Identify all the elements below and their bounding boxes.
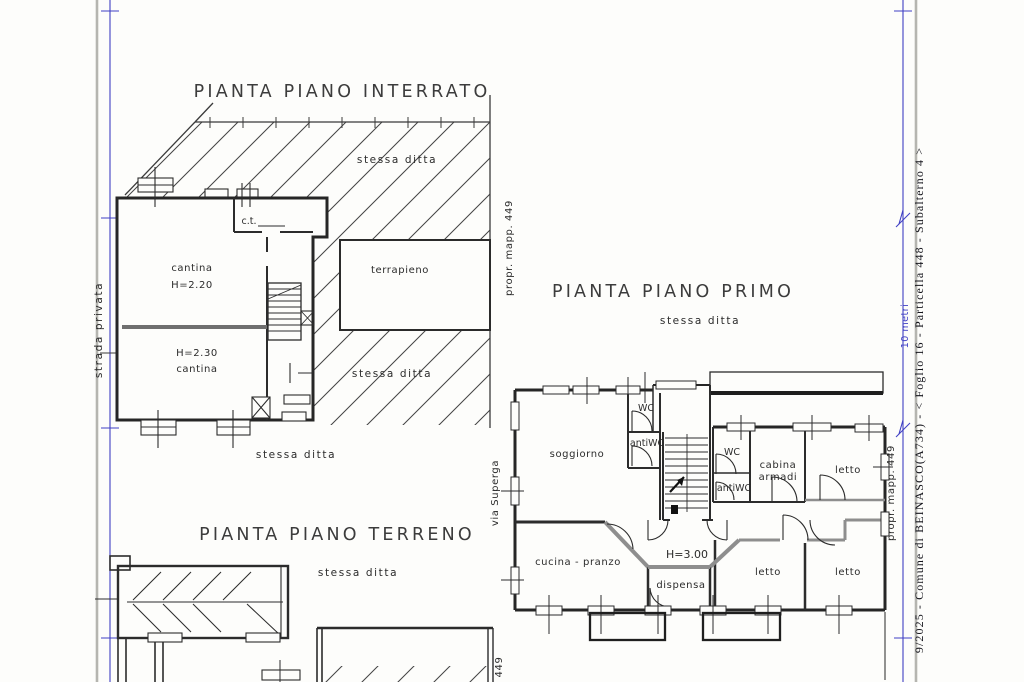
basement-plan: PIANTA PIANO INTERRATO [100, 82, 515, 461]
label-ct: c.t. [242, 216, 257, 227]
first-floor-gray-walls [605, 500, 885, 567]
label-cantina-upper: cantina [171, 263, 212, 274]
ground-floor-plan: PIANTA PIANO TERRENO stessa ditta 449 [95, 525, 505, 682]
neighbour-block [710, 372, 883, 393]
label-cucina-pranzo: cucina - pranzo [535, 557, 621, 568]
label-antiwc-top: antiWC [630, 438, 665, 449]
label-cantina-lower: cantina [176, 364, 217, 375]
label-letto-s2: letto [835, 567, 861, 578]
label-antiwc-mid: antiWC [717, 483, 752, 494]
first-floor-windows [501, 372, 893, 634]
label-cantina-upper-height: H=2.20 [171, 280, 213, 291]
ground-floor-title: PIANTA PIANO TERRENO [199, 525, 475, 545]
label-propr-mapp-449-basement: propr. mapp. 449 [504, 200, 515, 296]
first-floor-title: PIANTA PIANO PRIMO [552, 282, 794, 302]
label-cabina-armadi-1: cabina [760, 460, 797, 471]
label-letto-ne: letto [835, 465, 861, 476]
street-label-strada-privata: strada privata [93, 282, 105, 378]
label-letto-s1: letto [755, 567, 781, 578]
label-stessa-ditta-right: stessa ditta [352, 368, 432, 380]
first-floor-plan: PIANTA PIANO PRIMO stessa ditta [490, 282, 897, 680]
scale-label-10-metri: 10 metri [900, 304, 911, 348]
label-altezza-h300: H=3.00 [666, 548, 708, 561]
label-soggiorno: soggiorno [550, 449, 605, 460]
ground-floor-ramp [95, 556, 288, 682]
label-wc-mid: WC [724, 447, 740, 458]
label-cabina-armadi-2: armadi [759, 472, 798, 483]
label-stessa-ditta-top: stessa ditta [357, 154, 437, 166]
label-mapp-449-terreno: 449 [494, 657, 505, 678]
label-via-superga: via Superga [490, 460, 501, 526]
label-stessa-ditta-primo: stessa ditta [660, 315, 740, 327]
label-dispensa: dispensa [656, 580, 705, 591]
label-terrapieno: terrapieno [371, 265, 429, 276]
first-floor-balconies [590, 613, 780, 640]
cadastral-floorplan-sheet: strada privata 10 metri 9/2025 - Comune … [0, 0, 1024, 682]
label-cantina-lower-height: H=2.30 [176, 348, 218, 359]
label-propr-mapp-449-primo: propr. mapp. 449 [886, 445, 897, 541]
first-floor-staircase [665, 434, 708, 514]
floorplan-drawing: strada privata 10 metri 9/2025 - Comune … [0, 0, 1024, 682]
basement-title: PIANTA PIANO INTERRATO [194, 82, 491, 102]
margin-cadastral-reference: 9/2025 - Comune di BEINASCO(A734) - < Fo… [912, 147, 926, 653]
label-stessa-ditta-bottom: stessa ditta [256, 449, 336, 461]
label-stessa-ditta-terreno: stessa ditta [318, 567, 398, 579]
label-wc-top: WC [638, 403, 654, 414]
ground-floor-building [262, 628, 493, 682]
terrapieno-area [340, 240, 490, 330]
first-floor-outer-walls [515, 385, 885, 610]
